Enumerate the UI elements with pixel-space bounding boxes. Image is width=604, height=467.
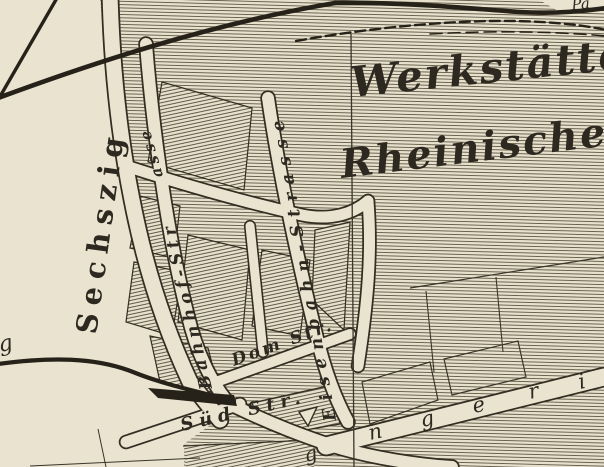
corner-label-fragment: Pa [570,0,591,14]
map-svg: Werkstätte Rheinischen Sechszig Bahnhof-… [0,0,604,467]
historic-map-canvas: Werkstätte Rheinischen Sechszig Bahnhof-… [0,0,604,467]
